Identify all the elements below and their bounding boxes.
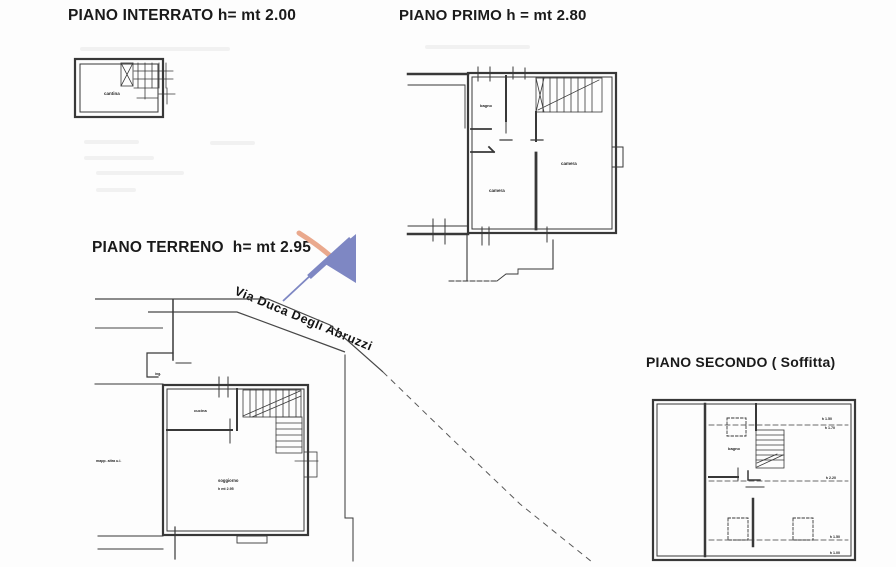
street-lower-edge <box>148 312 345 352</box>
room-label-camera: camera <box>489 188 505 193</box>
primo-outer-wall <box>468 73 616 233</box>
room-label-camera: camera <box>561 161 577 166</box>
scanned-plan-sheet: PIANO INTERRATO h= mt 2.00 PIANO PRIMO h… <box>0 0 896 567</box>
label-altra-unita: mapp. altra u.i. <box>96 459 121 463</box>
terreno-window-ticks <box>219 377 228 397</box>
terreno-inner-wall <box>167 389 304 531</box>
primo-stairs-icon <box>536 78 602 112</box>
terreno-window <box>237 536 267 543</box>
terreno-stairs-icon <box>243 390 318 477</box>
interrato-stairs-icon <box>121 63 175 104</box>
secondo-roof-window <box>793 518 813 540</box>
secondo-wall <box>748 471 760 480</box>
primo-window-ticks <box>433 219 445 244</box>
room-label-bagno: bagno <box>728 446 741 451</box>
room-label-soggiorno-height: h mt 2.95 <box>218 487 234 491</box>
room-label-cantina: cantina <box>104 91 120 96</box>
plan-primo: bagno camera camera <box>408 67 623 281</box>
logo-blue-triangle <box>322 234 356 283</box>
primo-wall <box>471 147 494 152</box>
plan-interrato: cantina <box>75 59 175 117</box>
primo-inner-wall <box>472 77 612 229</box>
height-mark: h 1.70 <box>825 426 835 430</box>
floor-plans-drawing: cantina <box>0 0 896 567</box>
room-label-cucina: cucina <box>194 408 207 413</box>
terreno-wing-wall <box>98 536 163 549</box>
plan-terreno: ing. <box>95 300 353 561</box>
room-label-ingresso: ing. <box>155 372 161 376</box>
plan-secondo: bagno h 1.50 h 1.70 h 2.20 h 1.50 h 1.00 <box>653 400 855 560</box>
primo-terrace-outline <box>449 235 553 281</box>
room-label-bagno: bagno <box>480 103 493 108</box>
height-mark: h 1.50 <box>822 417 832 421</box>
height-mark: h 2.20 <box>826 476 836 480</box>
primo-balcony-door <box>612 147 623 167</box>
secondo-roof-window <box>727 418 746 436</box>
street-upper-edge <box>95 299 383 372</box>
height-mark: h 1.00 <box>830 551 840 555</box>
height-mark: h 1.50 <box>830 535 840 539</box>
street-dashed-edge <box>383 372 592 562</box>
primo-adjoining-wall <box>408 85 465 128</box>
secondo-roof-window <box>728 518 748 540</box>
terreno-outer-wall <box>163 385 308 535</box>
watermark-logo <box>283 233 356 301</box>
secondo-stairs-icon <box>756 430 784 468</box>
logo-blue-tail <box>283 274 312 301</box>
room-label-soggiorno: soggiorno <box>218 478 239 483</box>
terreno-boundary <box>345 355 353 561</box>
